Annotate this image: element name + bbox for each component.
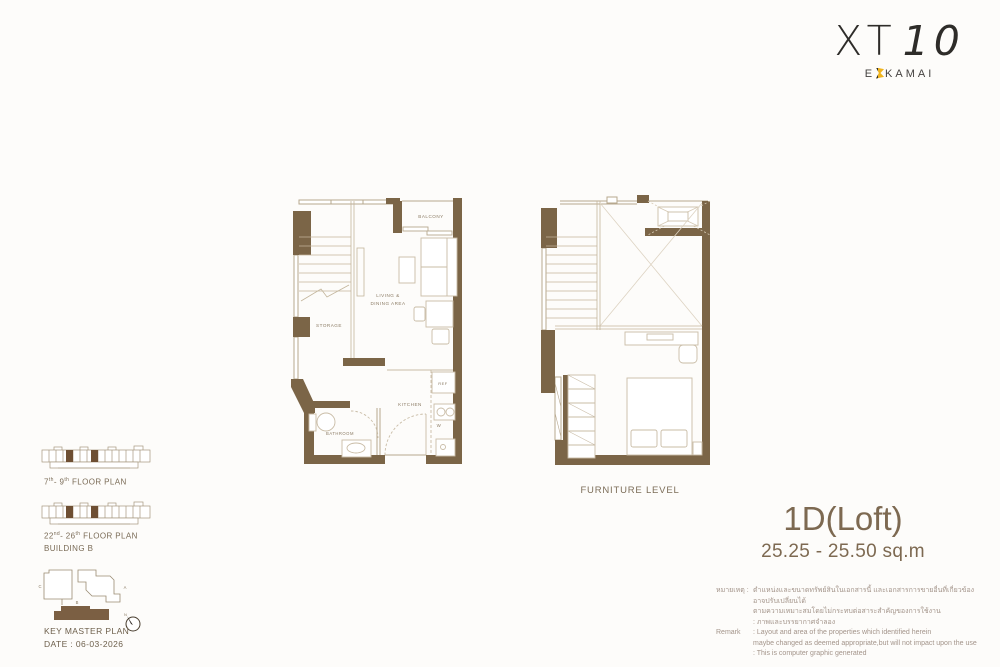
building-b-solid — [54, 606, 109, 620]
washer-label: W — [437, 423, 442, 428]
living-label-2: DINING AREA — [370, 301, 406, 306]
living-label-1: LIVING & — [376, 293, 399, 298]
unit-title-block: 1D(Loft) 25.25 - 25.50 sq.m — [753, 500, 933, 563]
floorplan-page: XT10 E KAMAI — [0, 0, 1000, 667]
remark-thai-label: หมายเหตุ : — [716, 586, 753, 628]
unit-area: 25.25 - 25.50 sq.m — [753, 541, 933, 563]
furniture-level-plan — [530, 193, 730, 473]
logo-subtitle: E KAMAI — [812, 68, 987, 80]
pillow-left — [631, 430, 657, 447]
bathroom-door-arc — [351, 411, 378, 438]
key-master-plan-date: DATE : 06-03-2026 — [44, 639, 123, 649]
nightstand — [693, 442, 702, 455]
pillow-right — [661, 430, 687, 447]
building-a-letter: A — [124, 585, 127, 590]
storage-label: STORAGE — [316, 323, 342, 328]
floorplan-thumbnail-7-9 — [40, 444, 155, 474]
side-table — [399, 257, 415, 283]
floorplan-thumbnail-22-26 — [40, 500, 155, 530]
building-c-letter: C — [38, 584, 41, 589]
stylized-k-icon — [876, 68, 884, 79]
bathroom-label: BATHROOM — [326, 431, 354, 436]
logo-number: 10 — [903, 17, 965, 65]
logo-title: XT10 — [812, 18, 987, 64]
key-master-plan: C A B N — [36, 562, 148, 634]
dining-chair-bottom — [432, 329, 449, 344]
kitchen-label: KITCHEN — [398, 402, 422, 407]
remark-thai-line-2: ตามความเหมาะสมโดยไม่กระทบต่อสาระสำคัญของ… — [753, 607, 988, 618]
entrance-door — [385, 414, 426, 455]
furniture-level-caption: FURNITURE LEVEL — [530, 485, 730, 496]
logo-sub-kamai: KAMAI — [885, 68, 934, 80]
key-master-plan-title: KEY MASTER PLAN — [44, 626, 129, 636]
remark-en-label: Remark — [716, 628, 753, 660]
wardrobe — [568, 375, 595, 458]
floorplan-label-7-9: 7th- 9th FLOOR PLAN — [44, 477, 127, 487]
floorplan-label-22-26: 22nd- 26th FLOOR PLAN — [44, 531, 138, 541]
project-logo: XT10 E KAMAI — [812, 18, 987, 80]
building-c-outline — [44, 570, 72, 599]
toilet-tank — [309, 414, 316, 431]
logo-sub-e: E — [865, 68, 875, 80]
remark-en-line-3: : This is computer graphic generated — [753, 649, 977, 660]
logo-brand: XT — [834, 17, 896, 65]
remark-en-line-1: : Layout and area of the properties whic… — [753, 628, 977, 639]
bedroom-furniture — [568, 332, 702, 458]
svg-text:N: N — [124, 612, 127, 617]
unit-name: 1D(Loft) — [753, 500, 933, 538]
building-b-label: BUILDING B — [44, 544, 93, 553]
building-b-letter: B — [76, 600, 79, 605]
building-a-outline — [78, 570, 120, 602]
ref-label: REF — [438, 381, 448, 386]
remark-block: หมายเหตุ : ตำแหน่งและขนาดทรัพย์สินในเอกส… — [716, 586, 988, 660]
remark-english: Remark : Layout and area of the properti… — [716, 628, 988, 660]
living-level-plan: BALCONY STORAGE LIVING & DINING AREA KIT… — [285, 193, 485, 473]
remark-en-lines: : Layout and area of the properties whic… — [753, 628, 977, 660]
dining-table — [426, 301, 453, 327]
dining-chair-left — [414, 307, 425, 321]
living-furniture — [399, 238, 457, 344]
balcony-sliding-door — [403, 227, 452, 235]
balcony-label: BALCONY — [418, 214, 443, 219]
remark-thai-line-3: : ภาพและบรรยากาศจำลอง — [753, 618, 988, 629]
toilet-bowl — [317, 413, 335, 431]
remark-thai: หมายเหตุ : ตำแหน่งและขนาดทรัพย์สินในเอกส… — [716, 586, 988, 628]
remark-thai-lines: ตำแหน่งและขนาดทรัพย์สินในเอกสารนี้ และเอ… — [753, 586, 988, 628]
remark-en-line-2: maybe changed as deemed appropriate,but … — [753, 639, 977, 650]
remark-thai-line-1: ตำแหน่งและขนาดทรัพย์สินในเอกสารนี้ และเอ… — [753, 586, 988, 607]
desk-chair — [679, 345, 697, 363]
